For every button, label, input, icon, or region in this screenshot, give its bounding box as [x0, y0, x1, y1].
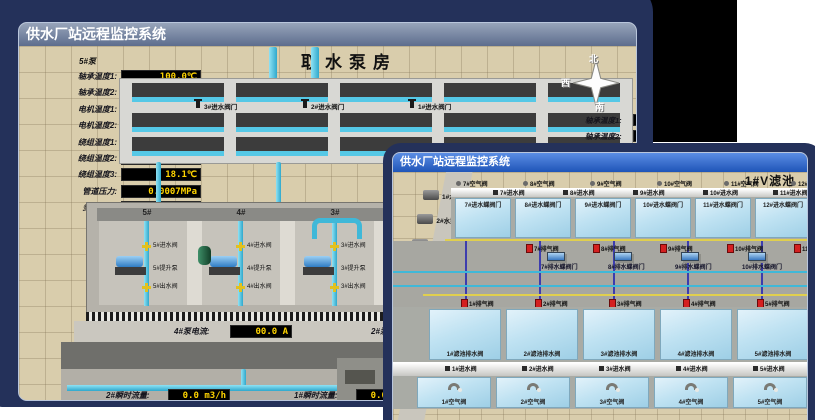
inlet-valve-icon[interactable]	[236, 242, 245, 251]
telemetry-value[interactable]: 0.0007MPa	[121, 185, 201, 198]
air-valve-label: 9#空气阀	[597, 179, 622, 188]
exhaust-valve-icon	[794, 244, 801, 253]
air-valve-icon	[590, 181, 595, 186]
cell-valve-label: 10#进水蝶阀门	[643, 200, 683, 209]
inlet-valve-icon	[445, 366, 450, 371]
air-pipe-elbow-icon	[448, 383, 460, 390]
side-readout-value[interactable]	[633, 114, 636, 126]
bay-number: 3#	[296, 208, 374, 217]
filter-cell[interactable]: 7#进水蝶阀门	[455, 198, 511, 238]
filter-cell[interactable]: 8#进水蝶阀门	[515, 198, 571, 238]
compass-north: 北	[589, 52, 598, 65]
exhaust-valve-icon	[526, 244, 533, 253]
inlet-valve-label: 5#进水阀	[153, 243, 178, 250]
filter-cell[interactable]: 11#进水蝶阀门	[695, 198, 751, 238]
air-valve-label: 8#空气阀	[530, 179, 555, 188]
filter-cell[interactable]: 4#滤池排水阀	[660, 309, 732, 360]
inlet-valve-icon[interactable]	[142, 242, 151, 251]
air-valve-label: 11#空气阀	[731, 179, 759, 188]
inlet-valve-icon	[773, 190, 778, 195]
air-valve-icon	[456, 181, 461, 186]
telemetry-row: 管道压力: 0.0007MPa	[33, 185, 203, 198]
inlet-valve-label: 9#进水阀	[640, 188, 665, 197]
air-valve-icon	[657, 181, 662, 186]
lift-pump-icon[interactable]	[304, 256, 331, 267]
air-valve-icon	[724, 181, 729, 186]
window-title: 供水厂站远程监控系统	[393, 153, 807, 172]
scene-title: 取水泵房	[259, 48, 439, 73]
telemetry-label: 轴承温度1:	[33, 70, 117, 83]
hall-divider	[280, 221, 295, 305]
side-readout-label: 轴承温度1:	[585, 115, 622, 126]
inlet-valve-label: 7#进水阀	[500, 188, 525, 197]
cell-air-valve-label: 3#空气阀	[600, 397, 625, 406]
flow-label: 1#瞬时流量:	[294, 390, 338, 400]
outlet-valve-icon[interactable]	[142, 283, 151, 292]
device-icon	[423, 190, 439, 200]
telemetry-label: 电机温度1:	[33, 103, 117, 116]
air-pipe-elbow-icon	[606, 383, 618, 390]
pump-panel-header: 5#泵	[79, 57, 96, 66]
telemetry-label: 绕组温度3:	[33, 168, 117, 181]
bay-number: 4#	[202, 208, 280, 217]
cell-valve-label: 12#进水蝶阀门	[763, 200, 803, 209]
valve-label: 1#进水阀门	[418, 101, 451, 111]
lift-pump-icon[interactable]	[116, 256, 143, 267]
exhaust-valve-icon	[593, 244, 600, 253]
current-label: 4#泵电流:	[174, 326, 210, 337]
window-body: 供水厂站远程监控系统 1#V滤池 1#水泵 2#水泵	[392, 152, 808, 420]
telemetry-label: 绕组温度1:	[33, 136, 117, 149]
side-readout-value[interactable]	[633, 130, 636, 142]
bay-pipe	[144, 221, 149, 306]
inlet-valve-icon[interactable]	[330, 242, 339, 251]
filter-scene: 1#V滤池 1#水泵 2#水泵 3#水泵	[393, 172, 807, 420]
cell-drain-label: 2#滤池排水阀	[524, 349, 561, 358]
cell-valve-label: 11#进水蝶阀门	[703, 200, 743, 209]
window-title: 供水厂站远程监控系统	[19, 23, 636, 46]
telemetry-label: 轴承温度2:	[33, 86, 117, 99]
air-valve-icon	[523, 181, 528, 186]
filter-cell[interactable]: 2#滤池排水阀	[506, 309, 578, 360]
inlet-valve-label: 4#进水阀	[247, 243, 272, 250]
cell-drain-label: 5#滤池排水阀	[755, 349, 792, 358]
inlet-valve-label: 3#进水阀	[341, 243, 366, 250]
bay-pipe	[238, 221, 243, 306]
cell-air-valve-label: 2#空气阀	[521, 397, 546, 406]
filter-cell[interactable]: 3#空气阀	[575, 377, 649, 408]
tank-icon	[547, 252, 565, 261]
filter-cell[interactable]: 3#滤池排水阀	[583, 309, 655, 360]
inlet-valve-label: 5#进水阀	[760, 364, 785, 373]
inlet-valve-label: 4#进水阀	[683, 364, 708, 373]
inlet-valve-label: 10#进水阀	[710, 188, 738, 197]
filter-cell[interactable]: 5#滤池排水阀	[737, 309, 807, 360]
lift-pump-label: 4#提升泵	[247, 266, 272, 273]
inlet-valve-label: 11#进水阀	[780, 188, 807, 197]
air-valve-label: 10#空气阀	[664, 179, 692, 188]
filter-cell[interactable]: 10#进水蝶阀门	[635, 198, 691, 238]
signal-line	[423, 294, 807, 296]
u-pipe	[312, 218, 362, 239]
exhaust-valve-label: 11#排气阀	[802, 244, 807, 253]
filter-cell[interactable]: 5#空气阀	[733, 377, 807, 408]
tank-icon	[748, 252, 766, 261]
exhaust-valve-icon	[660, 244, 667, 253]
valve-icon	[303, 101, 307, 108]
cell-drain-label: 1#滤池排水阀	[447, 349, 484, 358]
air-valve-label: 12#空气阀	[798, 179, 807, 188]
flow-label: 2#瞬时流量:	[106, 390, 150, 400]
telemetry-label: 管道压力:	[33, 185, 117, 198]
valve-label: 3#进水阀门	[204, 101, 237, 111]
cell-valve-label: 9#进水蝶阀门	[585, 200, 622, 209]
green-tank-icon	[198, 246, 211, 265]
filter-cell[interactable]: 1#滤池排水阀	[429, 309, 501, 360]
compass-west: 西	[561, 76, 570, 89]
air-valve-icon	[791, 181, 796, 186]
side-readout-label: 轴承温度2:	[585, 131, 622, 142]
pump-bay: 3# 3#进水阀 3#提升泵 3#出水阀	[296, 206, 374, 308]
backdrop-black	[650, 0, 737, 142]
telemetry-label: 电机温度2:	[33, 119, 117, 132]
air-pipe-elbow-icon	[527, 383, 539, 390]
pipe	[311, 47, 319, 79]
cell-drain-label: 3#滤池排水阀	[601, 349, 638, 358]
telemetry-row: 绕组温度3: 18.1℃	[33, 168, 203, 181]
meter-device-icon	[345, 370, 375, 384]
cell-valve-label: 8#进水蝶阀门	[525, 200, 562, 209]
bay-number: 5#	[108, 208, 186, 217]
lift-pump-label: 3#提升泵	[341, 266, 366, 273]
pipe	[276, 162, 281, 206]
pump-base	[209, 267, 240, 275]
air-pipe-elbow-icon	[764, 383, 776, 390]
tank-icon	[681, 252, 699, 261]
cell-air-valve-label: 1#空气阀	[442, 397, 467, 406]
pump-base	[115, 267, 146, 275]
lift-pump-label: 5#提升泵	[153, 266, 178, 273]
desktop: 供水厂站远程监控系统 取水泵房 5#泵 轴承温度1: 100.0℃ 轴承温度2:	[0, 0, 815, 420]
window-v-filter: 供水厂站远程监控系统 1#V滤池 1#水泵 2#水泵	[383, 143, 815, 420]
filter-cell[interactable]: 4#空气阀	[654, 377, 728, 408]
outlet-valve-label: 5#出水阀	[153, 284, 178, 291]
inlet-valve-icon	[676, 366, 681, 371]
air-pipe-elbow-icon	[685, 383, 697, 390]
valve-icon	[410, 101, 414, 108]
inlet-valve-icon	[522, 366, 527, 371]
pump-bay: 4# 4#进水阀 4#提升泵 4#出水阀	[202, 206, 280, 308]
filter-cell[interactable]: 1#空气阀	[417, 377, 491, 408]
pump-base	[303, 267, 334, 275]
outlet-valve-icon[interactable]	[236, 283, 245, 292]
channel-row	[132, 113, 620, 127]
filter-cell[interactable]: 2#空气阀	[496, 377, 570, 408]
inlet-valve-label: 3#进水阀	[606, 364, 631, 373]
pump-bay: 5# 5#进水阀 5#提升泵 5#出水阀	[108, 206, 186, 308]
compass-south: 南	[595, 100, 604, 113]
outlet-valve-label: 4#出水阀	[247, 284, 272, 291]
drain-butterfly-label: 8#排水蝶阀门	[608, 262, 645, 271]
channel-row	[132, 83, 620, 97]
cell-air-valve-label: 5#空气阀	[758, 397, 783, 406]
lift-pump-icon[interactable]	[210, 256, 237, 267]
compass: 北 西 南	[559, 52, 636, 112]
inlet-valve-icon	[703, 190, 708, 195]
inlet-valve-label: 1#进水阀	[452, 364, 477, 373]
pipe	[269, 47, 277, 79]
current-value[interactable]: 00.0 A	[230, 325, 292, 338]
pipe	[156, 162, 161, 206]
channel-water	[132, 127, 620, 132]
inlet-valve-icon	[563, 190, 568, 195]
device-icon	[417, 214, 433, 224]
filter-cell[interactable]: 12#进水蝶阀门	[755, 198, 807, 238]
valve-label: 2#进水阀门	[311, 101, 344, 111]
drain-butterfly-label: 9#排水蝶阀门	[675, 262, 712, 271]
drain-butterfly-label: 7#排水蝶阀门	[541, 262, 578, 271]
air-valve-label: 7#空气阀	[463, 179, 488, 188]
drain-butterfly-label: 10#排水蝶阀门	[742, 262, 782, 271]
cell-drain-label: 4#滤池排水阀	[678, 349, 715, 358]
cell-valve-label: 7#进水蝶阀门	[465, 200, 502, 209]
flow-value[interactable]: 0.0 m3/h	[168, 389, 230, 400]
telemetry-value[interactable]: 18.1℃	[121, 168, 201, 181]
telemetry-label: 绕组温度2:	[33, 152, 117, 165]
inlet-valve-icon	[493, 190, 498, 195]
valve-icon	[196, 101, 200, 108]
inlet-valve-icon	[633, 190, 638, 195]
outlet-valve-icon[interactable]	[330, 283, 339, 292]
inlet-valve-label: 2#进水阀	[529, 364, 554, 373]
inlet-valve-icon	[753, 366, 758, 371]
outlet-valve-label: 3#出水阀	[341, 284, 366, 291]
inlet-valve-label: 8#进水阀	[570, 188, 595, 197]
filter-cell[interactable]: 9#进水蝶阀门	[575, 198, 631, 238]
exhaust-valve-icon	[727, 244, 734, 253]
tank-icon	[614, 252, 632, 261]
cell-air-valve-label: 4#空气阀	[679, 397, 704, 406]
inlet-valve-icon	[599, 366, 604, 371]
